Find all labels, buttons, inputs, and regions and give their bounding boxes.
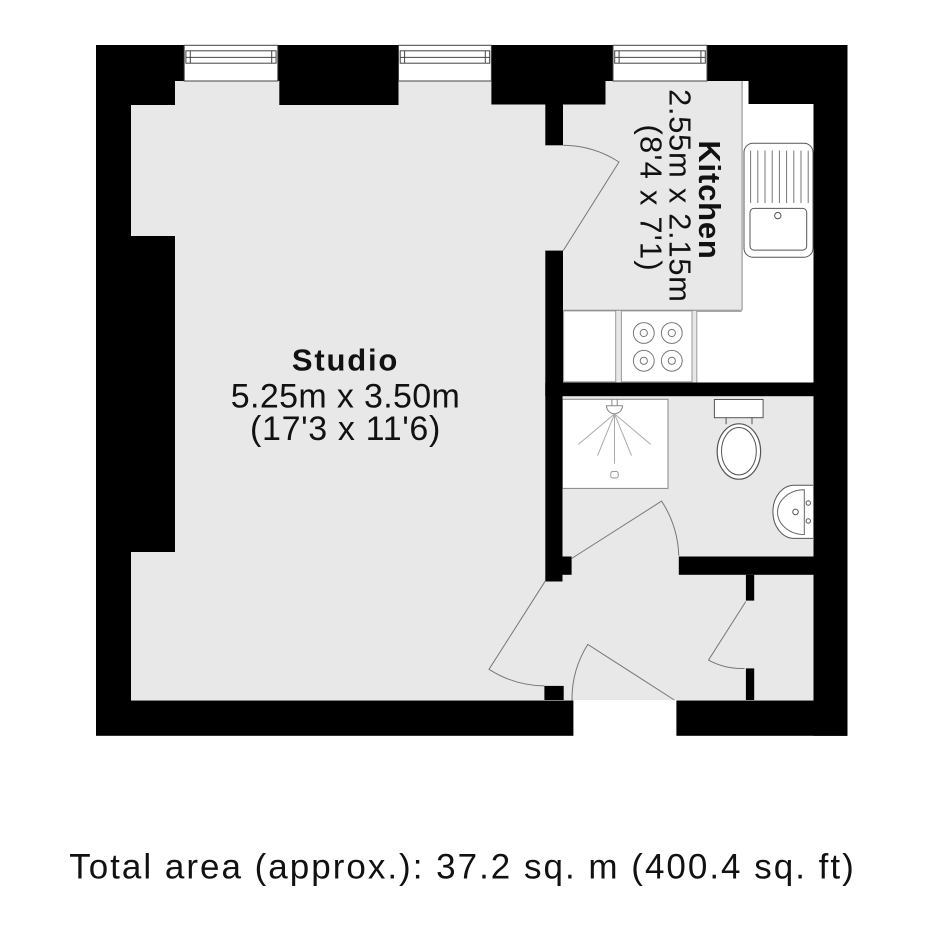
svg-text:Total area (approx.): 37.2 sq.: Total area (approx.): 37.2 sq. m (400.4 … <box>69 848 856 887</box>
svg-text:Studio: Studio <box>292 343 399 378</box>
svg-text:(17'3 x 11'6): (17'3 x 11'6) <box>250 410 441 448</box>
svg-text:(8'4 x 7'1): (8'4 x 7'1) <box>633 125 668 272</box>
